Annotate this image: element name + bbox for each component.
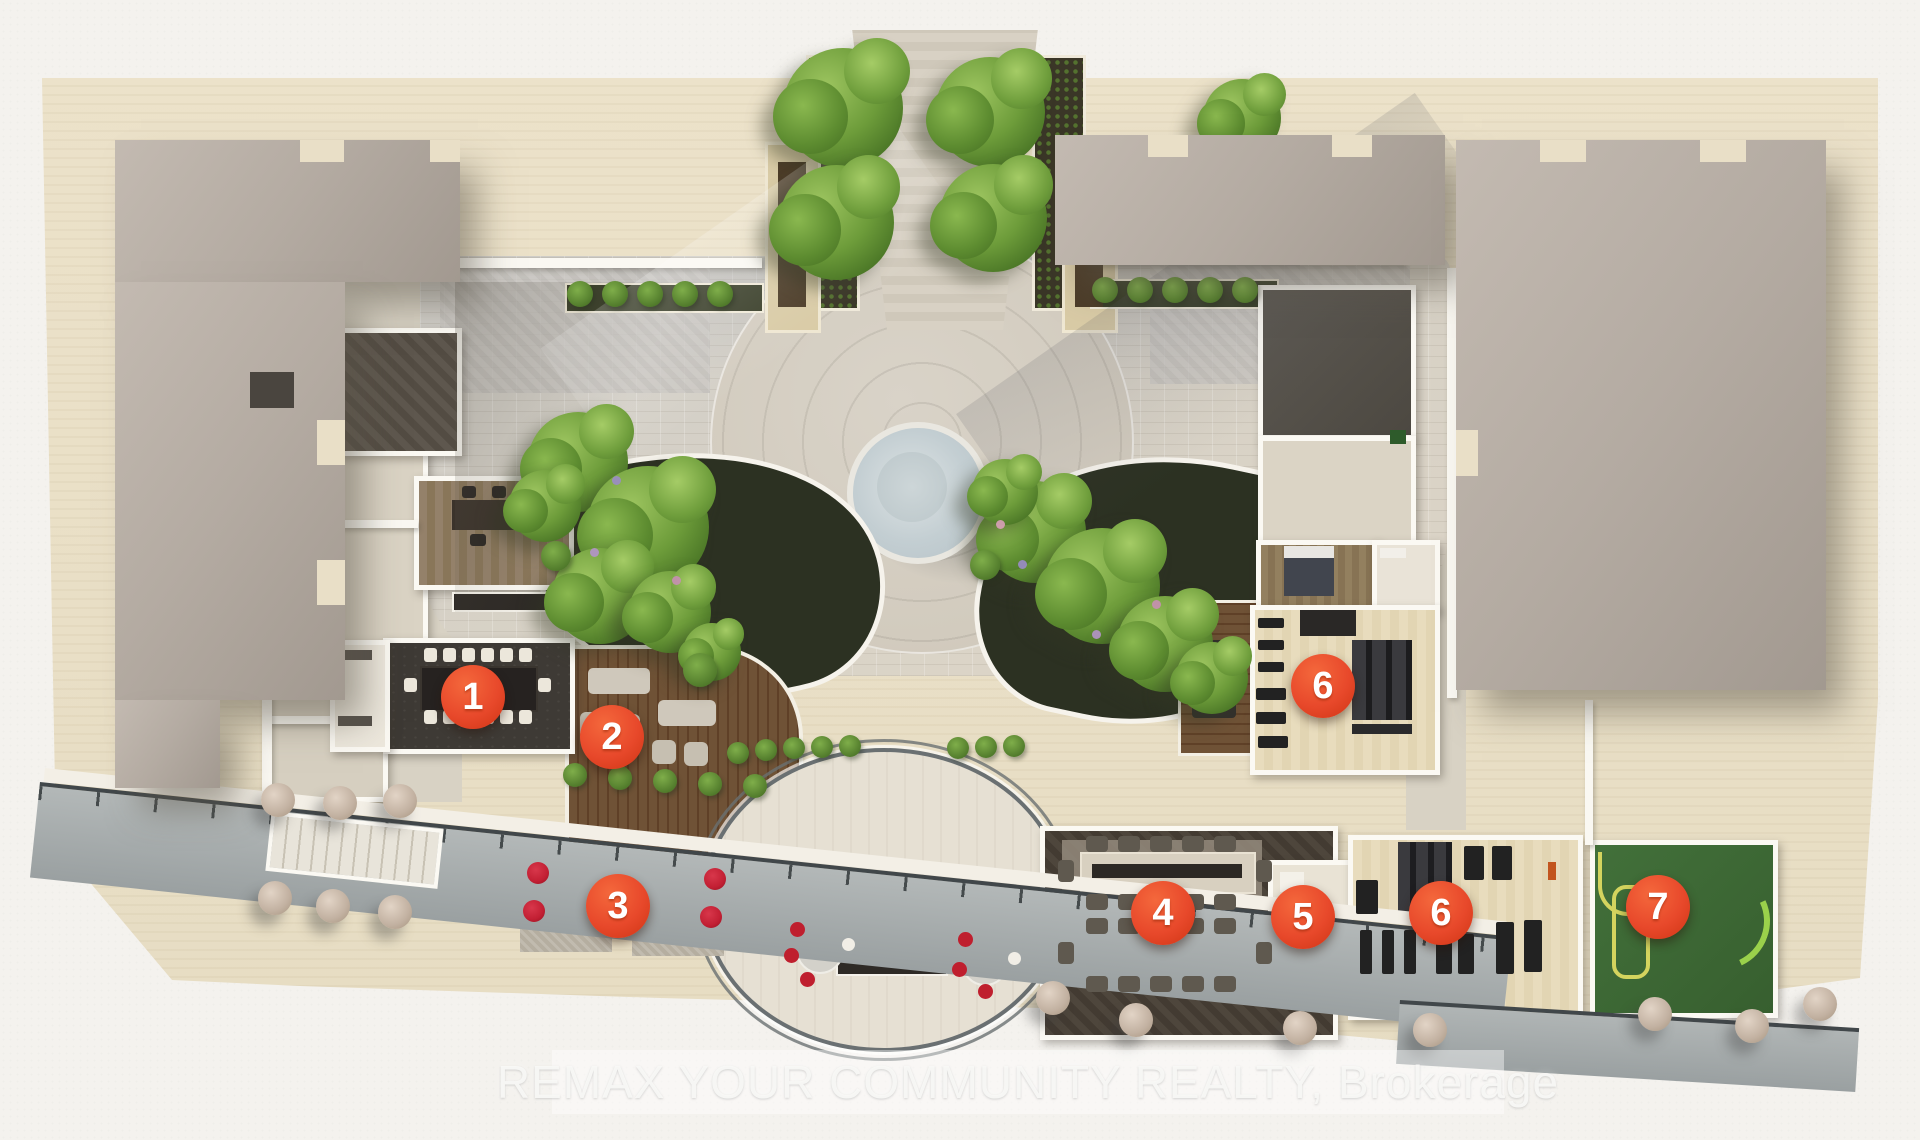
- amenity-marker-6: 6: [1291, 654, 1355, 718]
- amenity-marker-6: 6: [1409, 881, 1473, 945]
- amenity-marker-4: 4: [1131, 881, 1195, 945]
- markers-layer: 12345667: [0, 0, 1920, 1140]
- watermark-text: REMAX YOUR COMMUNITY REALTY, Brokerage: [497, 1055, 1559, 1109]
- amenity-marker-7: 7: [1626, 875, 1690, 939]
- floor-plan-rendering: 12345667 REMAX YOUR COMMUNITY REALTY, Br…: [0, 0, 1920, 1140]
- amenity-marker-2: 2: [580, 705, 644, 769]
- amenity-marker-3: 3: [586, 874, 650, 938]
- watermark: REMAX YOUR COMMUNITY REALTY, Brokerage: [552, 1050, 1504, 1114]
- amenity-marker-1: 1: [441, 665, 505, 729]
- amenity-marker-5: 5: [1271, 885, 1335, 949]
